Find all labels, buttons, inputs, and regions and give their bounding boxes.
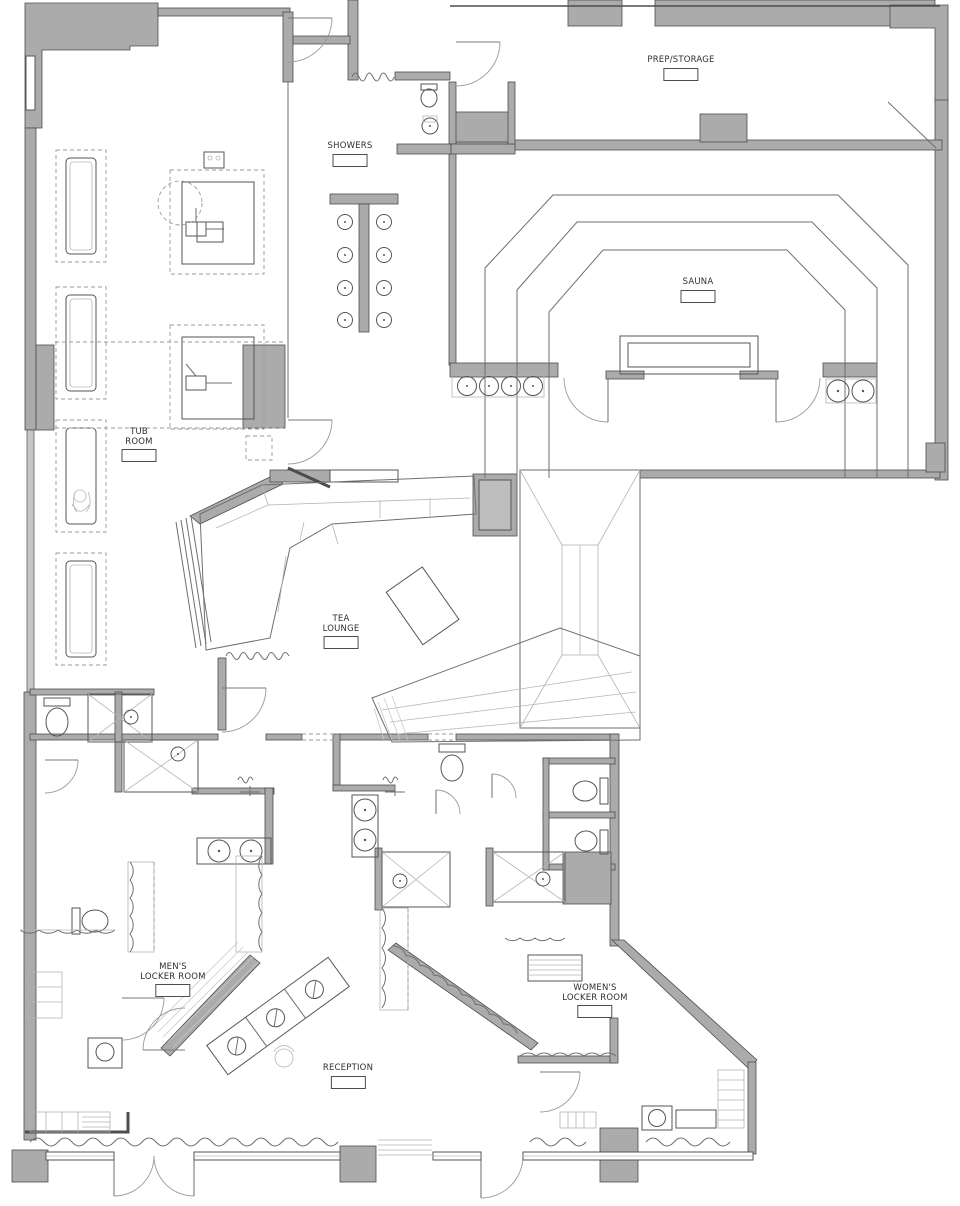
room-tag — [330, 1076, 365, 1089]
room-tag — [156, 984, 191, 997]
room-tag — [324, 636, 359, 649]
room-label-text: SHOWERS — [328, 141, 373, 151]
shower-heads — [338, 84, 439, 328]
tea-lounge-furniture — [176, 470, 640, 742]
room-label-text: TEA — [333, 614, 350, 624]
room-label-text: RECEPTION — [323, 1063, 373, 1073]
storefront — [25, 1070, 753, 1160]
reception-desk — [207, 957, 350, 1074]
room-label-text: LOCKER ROOM — [562, 993, 627, 1003]
room-label-text: PREP/STORAGE — [647, 55, 714, 65]
room-tag — [681, 290, 716, 303]
room-label-text: ROOM — [125, 437, 152, 447]
shower-partition — [330, 194, 398, 332]
room-label-prep-storage: PREP/STORAGE — [647, 56, 714, 81]
floor-plan: PREP/STORAGE SHOWERS SAUNA TUB ROOM TEA … — [0, 0, 960, 1206]
room-label-text: TUB — [130, 427, 148, 437]
room-tag — [122, 449, 157, 462]
structure-lines — [26, 6, 940, 487]
room-label-womens-locker-room: WOMEN'S LOCKER ROOM — [562, 984, 627, 1018]
room-label-text: WOMEN'S — [573, 983, 616, 993]
sauna-heater — [620, 336, 758, 374]
room-label-text: LOCKER ROOM — [140, 972, 205, 982]
room-label-reception: RECEPTION — [323, 1064, 373, 1089]
room-label-text: SAUNA — [683, 277, 714, 287]
room-label-tea-lounge: TEA LOUNGE — [323, 615, 360, 649]
room-label-tub-room: TUB ROOM — [122, 428, 157, 462]
room-label-showers: SHOWERS — [328, 142, 373, 167]
room-tag — [663, 68, 698, 81]
sauna-basins — [452, 376, 876, 403]
locker-banks — [20, 856, 616, 1056]
room-tag — [333, 154, 368, 167]
room-label-sauna: SAUNA — [681, 278, 716, 303]
room-label-text: MEN'S — [159, 962, 187, 972]
room-label-mens-locker-room: MEN'S LOCKER ROOM — [140, 963, 205, 997]
room-tag — [578, 1005, 613, 1018]
room-label-text: LOUNGE — [323, 624, 360, 634]
floor-plan-canvas — [0, 0, 960, 1206]
